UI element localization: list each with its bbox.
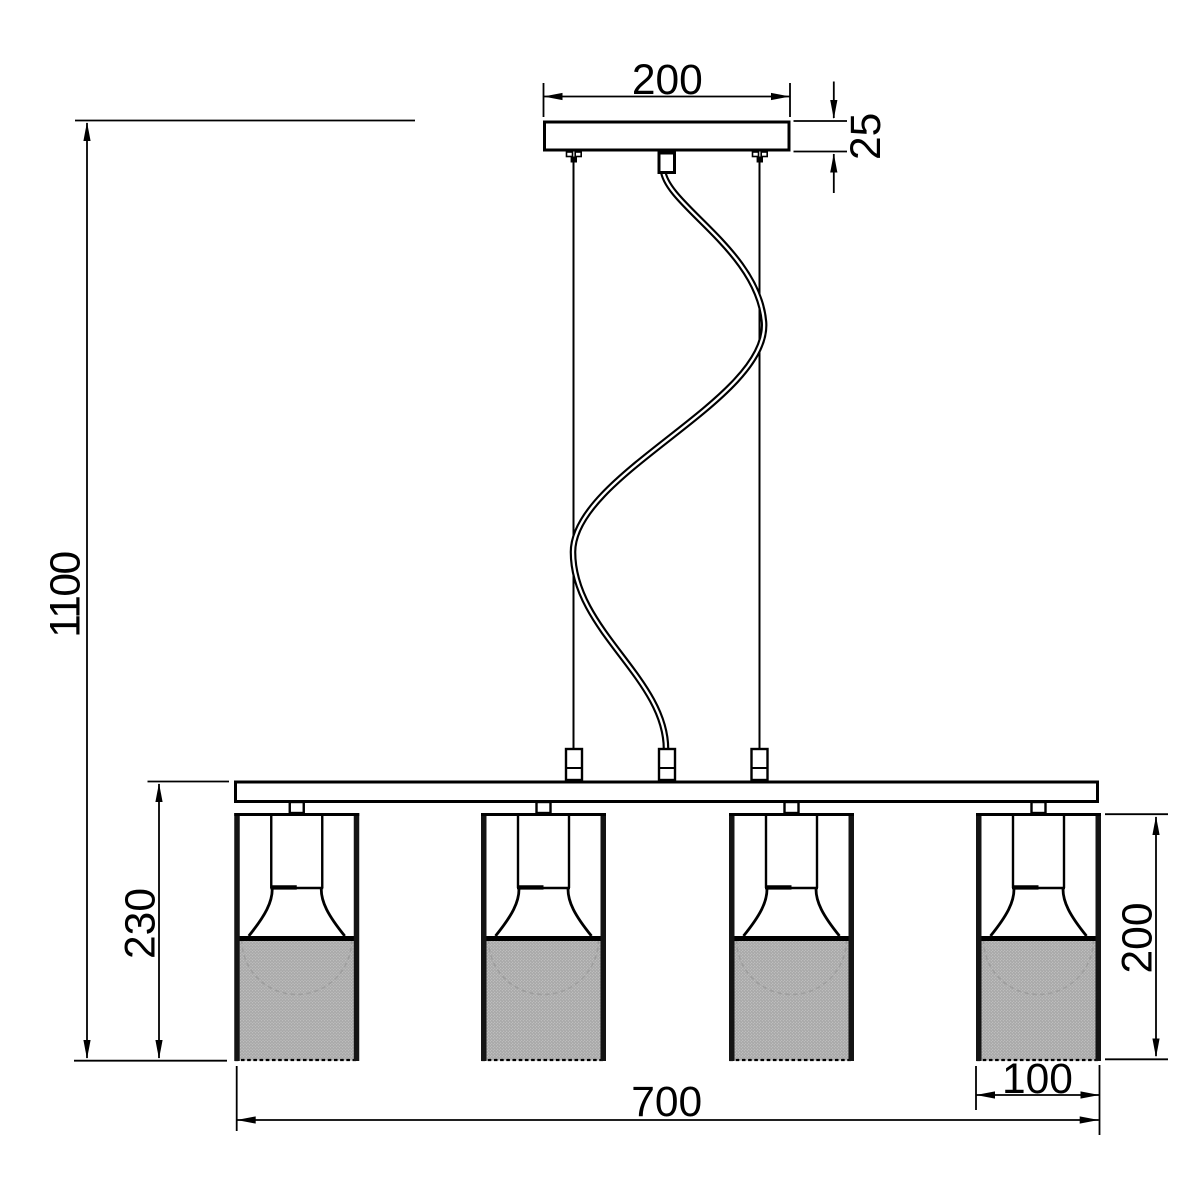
svg-text:1100: 1100 (43, 552, 90, 637)
svg-text:200: 200 (632, 57, 703, 104)
svg-text:25: 25 (843, 113, 890, 160)
svg-text:230: 230 (118, 888, 165, 959)
svg-text:700: 700 (631, 1079, 702, 1126)
svg-text:100: 100 (1002, 1056, 1073, 1103)
svg-text:200: 200 (1115, 903, 1162, 974)
